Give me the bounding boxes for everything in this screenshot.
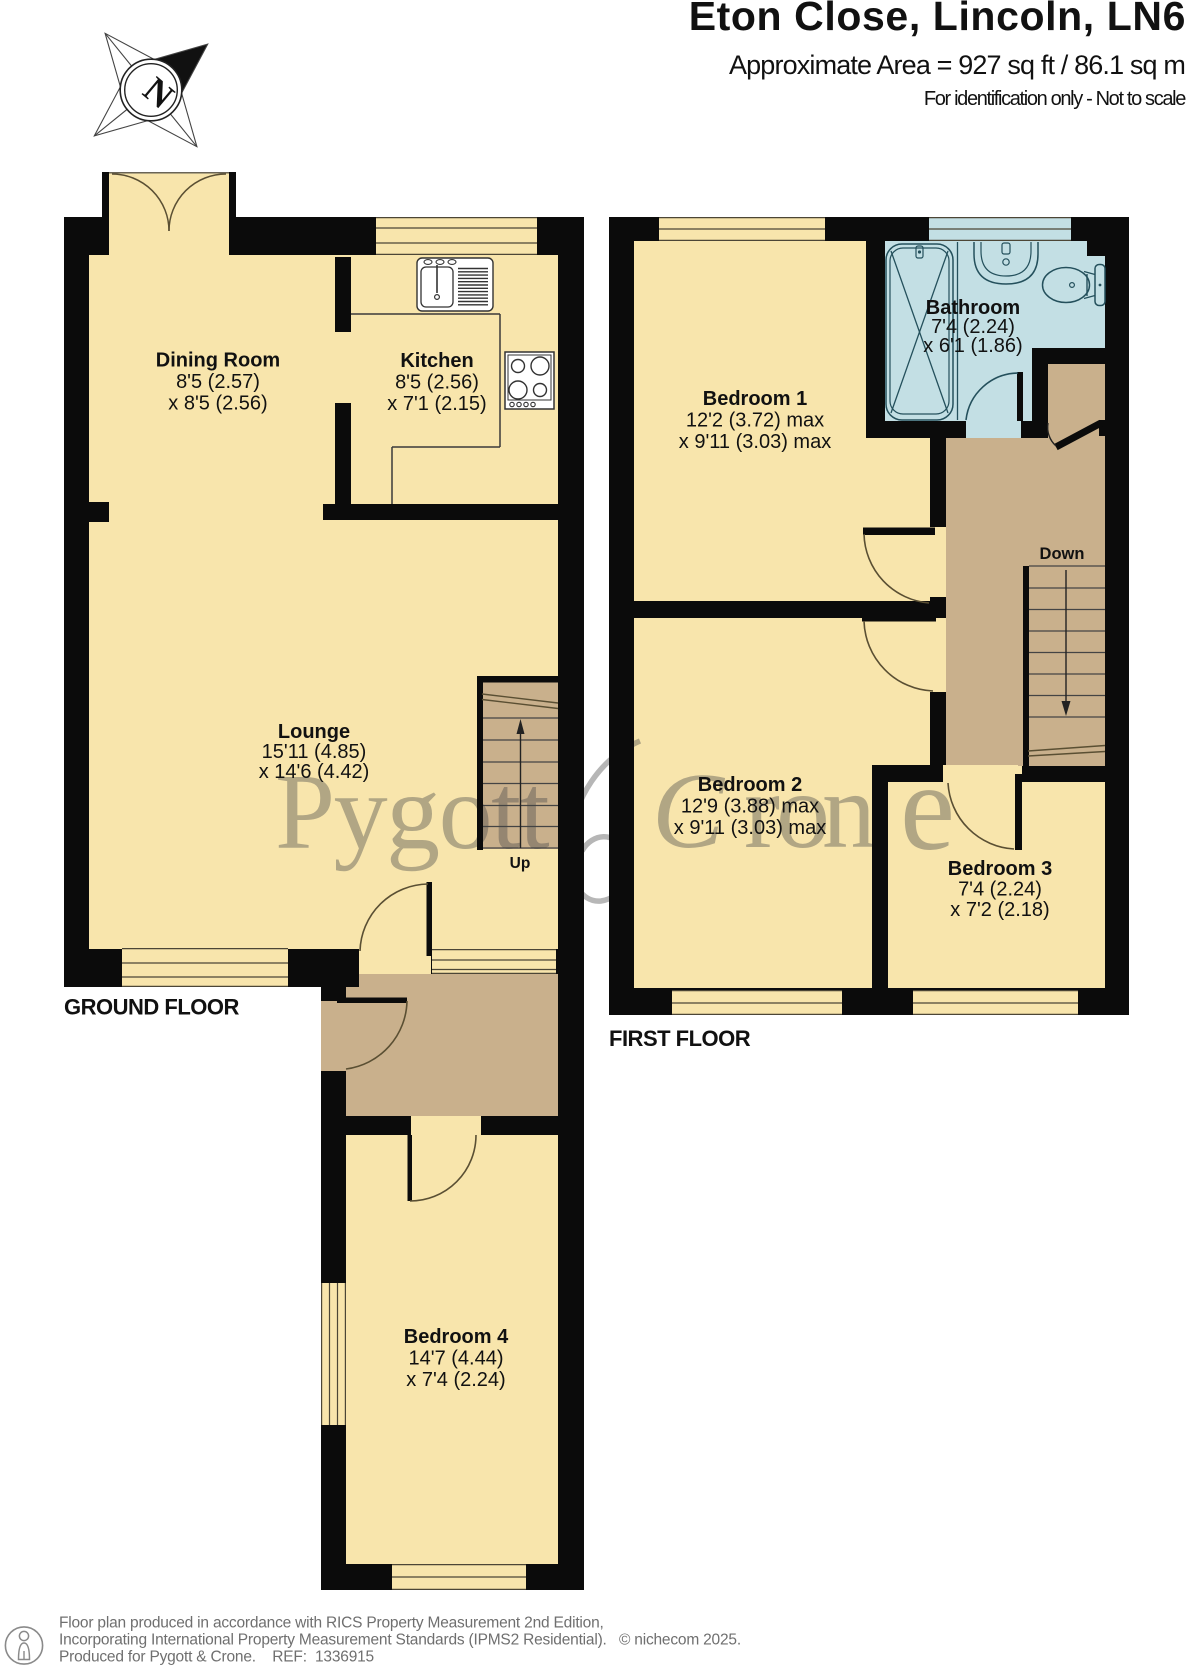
svg-text:7'4 (2.24): 7'4 (2.24): [958, 879, 1042, 901]
svg-text:x 7'2 (2.18): x 7'2 (2.18): [950, 899, 1049, 921]
svg-text:x 7'4 (2.24): x 7'4 (2.24): [406, 1369, 505, 1391]
svg-text:x 14'6 (4.42): x 14'6 (4.42): [259, 761, 370, 783]
svg-text:Eton Close, Lincoln, LN6: Eton Close, Lincoln, LN6: [689, 0, 1186, 39]
svg-text:Produced for Pygott & Crone.: Produced for Pygott & Crone. REF: 133691…: [59, 1649, 374, 1666]
svg-text:12'2 (3.72) max: 12'2 (3.72) max: [686, 410, 824, 432]
svg-text:Bedroom 4: Bedroom 4: [404, 1326, 509, 1348]
svg-text:x 7'1 (2.15): x 7'1 (2.15): [387, 393, 486, 415]
svg-text:e: e: [900, 739, 955, 876]
svg-text:14'7 (4.44): 14'7 (4.44): [409, 1348, 504, 1370]
svg-text:x 6'1 (1.86): x 6'1 (1.86): [923, 335, 1022, 357]
svg-text:GROUND FLOOR: GROUND FLOOR: [64, 995, 239, 1020]
svg-text:Incorporating International Pr: Incorporating International Property Mea…: [59, 1632, 741, 1649]
svg-text:For identification only - Not: For identification only - Not to scale: [924, 88, 1186, 110]
svg-text:x 9'11 (3.03) max: x 9'11 (3.03) max: [674, 817, 826, 839]
svg-text:Floor plan produced in accorda: Floor plan produced in accordance with R…: [59, 1615, 604, 1632]
svg-text:Down: Down: [1040, 545, 1085, 563]
svg-text:Up: Up: [510, 855, 531, 872]
svg-text:x 8'5 (2.56): x 8'5 (2.56): [168, 393, 267, 415]
svg-text:Approximate Area = 927 sq ft /: Approximate Area = 927 sq ft / 86.1 sq m: [729, 50, 1185, 80]
svg-text:8'5 (2.57): 8'5 (2.57): [176, 371, 260, 393]
svg-text:15'11 (4.85): 15'11 (4.85): [262, 741, 367, 763]
svg-text:Bedroom 2: Bedroom 2: [698, 774, 802, 796]
svg-text:x 9'11 (3.03) max: x 9'11 (3.03) max: [679, 431, 831, 453]
svg-text:Bedroom 3: Bedroom 3: [948, 858, 1052, 880]
svg-text:FIRST FLOOR: FIRST FLOOR: [609, 1026, 751, 1051]
svg-text:Bedroom 1: Bedroom 1: [703, 388, 807, 410]
svg-text:12'9 (3.88) max: 12'9 (3.88) max: [681, 796, 819, 818]
svg-text:8'5 (2.56): 8'5 (2.56): [395, 372, 479, 394]
svg-text:Lounge: Lounge: [278, 721, 350, 743]
svg-text:n: n: [822, 752, 876, 871]
svg-text:Kitchen: Kitchen: [400, 350, 473, 372]
svg-text:Dining Room: Dining Room: [156, 350, 280, 372]
